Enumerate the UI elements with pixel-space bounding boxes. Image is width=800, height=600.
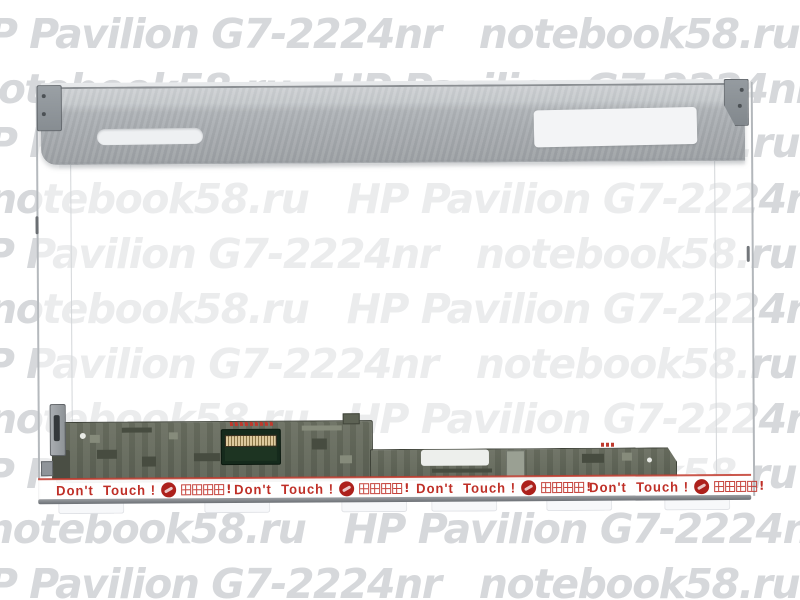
dont-touch-text: Don't Touch ! xyxy=(234,481,334,497)
panel-left-edge-mark xyxy=(35,216,38,234)
driver-pcb-left xyxy=(56,420,373,483)
dont-touch-text: Don't Touch ! xyxy=(416,479,516,495)
cjk-glyph xyxy=(725,480,735,491)
lcd-panel: Don't Touch !!Don't Touch !!Don't Touch … xyxy=(0,0,800,600)
cjk-glyph xyxy=(736,480,746,491)
cjk-glyph xyxy=(214,484,224,495)
dont-touch-label: Don't Touch !! xyxy=(589,478,764,495)
panel-right-edge-mark xyxy=(747,246,750,262)
pcb-component xyxy=(432,468,492,472)
cjk-glyph xyxy=(192,484,202,495)
pcb-component xyxy=(340,455,352,463)
pcb-component xyxy=(97,450,117,459)
cjk-warning-text: ! xyxy=(714,479,765,493)
pcb-component xyxy=(194,453,220,461)
cjk-glyph xyxy=(541,482,551,493)
bottom-left-tab xyxy=(41,461,53,476)
cjk-glyph xyxy=(714,481,724,492)
connector-body xyxy=(225,447,277,461)
cjk-glyph xyxy=(359,483,369,494)
hinge-bracket-bottom-left xyxy=(50,404,66,456)
rail-slot-cutout xyxy=(97,128,203,145)
pcb-tab xyxy=(343,413,360,424)
cjk-warning-text: ! xyxy=(541,480,592,494)
cjk-glyph xyxy=(181,484,191,495)
dont-touch-text: Don't Touch ! xyxy=(589,478,689,494)
lvds-connector xyxy=(221,429,281,465)
connector-label-marking xyxy=(230,422,274,426)
warning-exclamation: ! xyxy=(759,479,765,493)
screw-hole-icon xyxy=(80,433,86,439)
pcb-white-label xyxy=(421,449,489,465)
screw-hole-icon xyxy=(738,104,742,108)
dont-touch-label: Don't Touch !! xyxy=(416,479,591,496)
dont-touch-label: Don't Touch !! xyxy=(56,481,231,498)
no-touch-icon xyxy=(694,479,709,494)
screw-hole-icon xyxy=(42,112,46,116)
no-touch-icon xyxy=(161,482,176,497)
cjk-glyph xyxy=(203,484,213,495)
cjk-glyph xyxy=(370,483,380,494)
pcb-component xyxy=(582,454,604,463)
cjk-warning-text: ! xyxy=(359,481,410,495)
pcb-component xyxy=(302,425,342,430)
screw-hole-icon xyxy=(740,88,744,92)
pcb-component xyxy=(122,428,152,433)
cjk-glyph xyxy=(381,483,391,494)
cjk-warning-text: ! xyxy=(181,482,232,496)
warning-exclamation: ! xyxy=(404,481,410,495)
dont-touch-label: Don't Touch !! xyxy=(234,480,409,497)
no-touch-icon xyxy=(521,480,536,495)
pcb-component xyxy=(622,453,632,461)
no-touch-icon xyxy=(339,481,354,496)
pcb-component xyxy=(312,438,327,449)
cjk-glyph xyxy=(563,481,573,492)
cjk-glyph xyxy=(392,482,402,493)
screw-hole-icon xyxy=(42,94,46,98)
screw-hole-icon xyxy=(647,457,652,462)
warning-exclamation: ! xyxy=(226,482,232,496)
cjk-glyph xyxy=(747,480,757,491)
product-photo: HP Pavilion G7-2224nr notebook58.ru HPno… xyxy=(0,0,800,600)
connector-pins xyxy=(225,435,277,447)
rail-white-sticker xyxy=(534,107,698,148)
hinge-bracket-top-left xyxy=(37,85,62,131)
pcb-component xyxy=(142,456,156,466)
cjk-glyph xyxy=(552,482,562,493)
bracket-slot xyxy=(54,415,60,441)
cjk-glyph xyxy=(574,481,584,492)
pcb-component xyxy=(90,435,100,443)
dont-touch-text: Don't Touch ! xyxy=(56,482,156,498)
pcb-component xyxy=(169,432,178,439)
pcb-red-marking xyxy=(601,443,615,447)
